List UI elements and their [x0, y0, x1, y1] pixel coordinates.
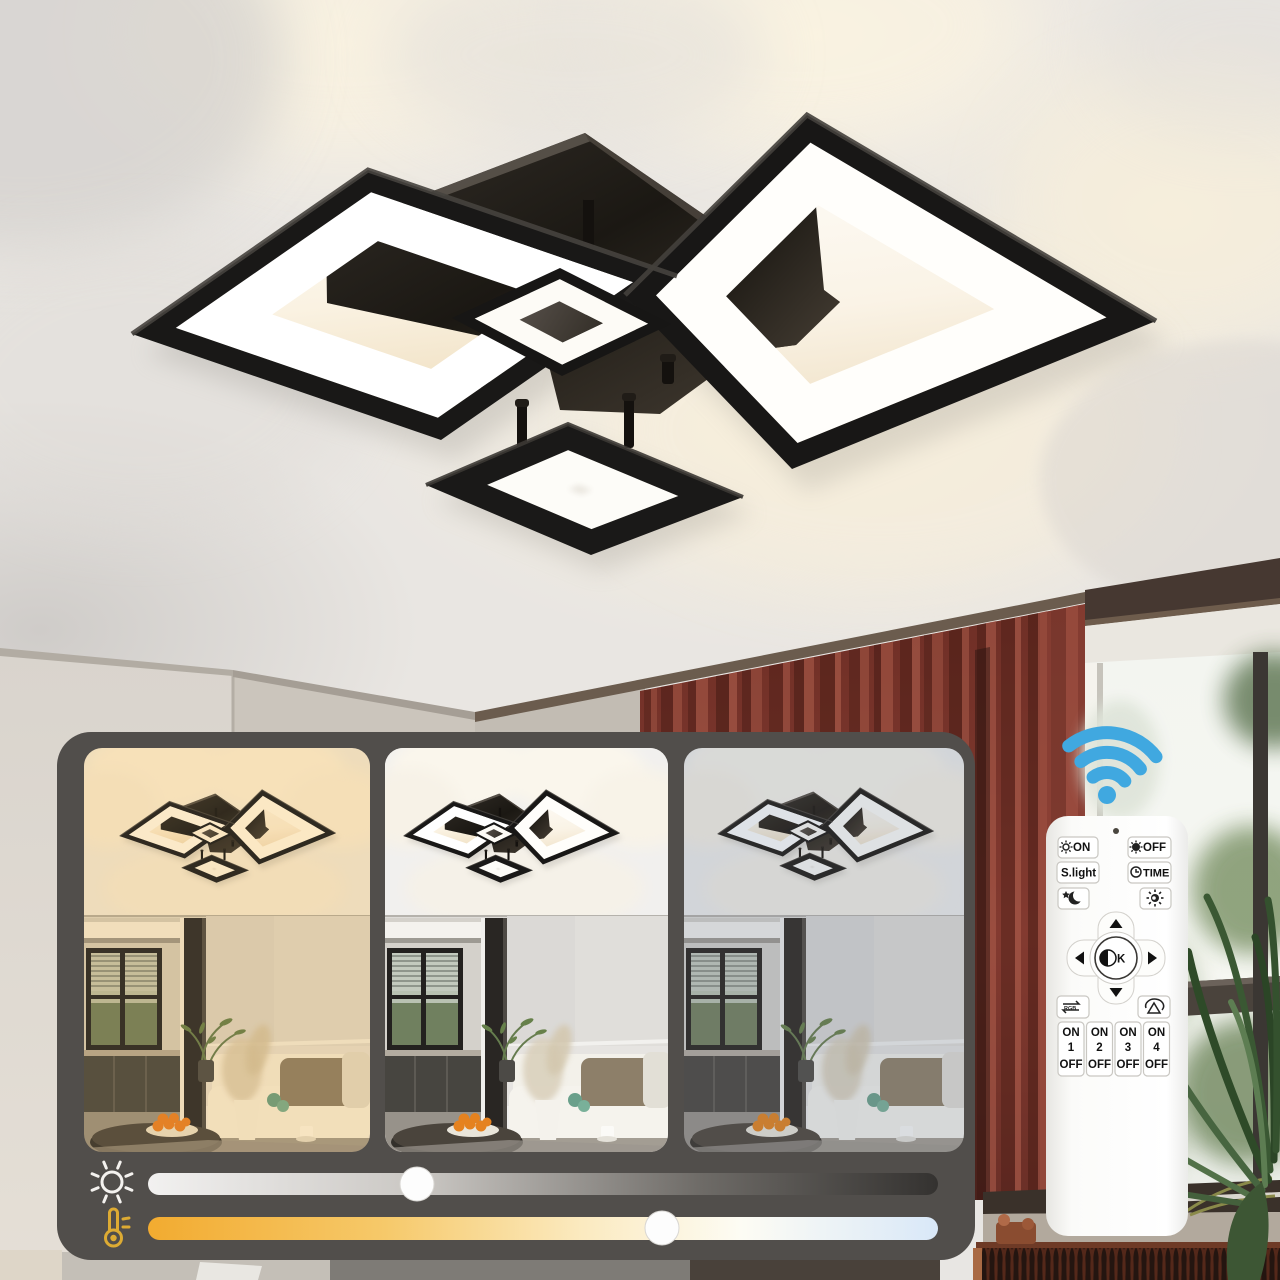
svg-text:OFF: OFF [1117, 1059, 1140, 1071]
svg-text:ON: ON [1062, 1027, 1079, 1039]
svg-text:3: 3 [1125, 1042, 1131, 1054]
svg-text:ON: ON [1119, 1027, 1136, 1039]
svg-text:ON: ON [1148, 1027, 1165, 1039]
svg-text:RGB: RGB [1064, 1006, 1076, 1012]
svg-text:OFF: OFF [1145, 1059, 1168, 1071]
svg-text:TIME: TIME [1143, 868, 1169, 880]
svg-text:OFF: OFF [1088, 1059, 1111, 1071]
svg-text:ON: ON [1073, 842, 1090, 854]
svg-text:4: 4 [1153, 1042, 1160, 1054]
svg-text:2: 2 [1096, 1042, 1102, 1054]
svg-text:OFF: OFF [1060, 1059, 1083, 1071]
svg-text:1: 1 [1068, 1042, 1075, 1054]
svg-text:OFF: OFF [1143, 842, 1166, 854]
svg-text:S.light: S.light [1061, 868, 1096, 880]
svg-text:K: K [1117, 954, 1126, 966]
svg-text:ON: ON [1091, 1027, 1108, 1039]
